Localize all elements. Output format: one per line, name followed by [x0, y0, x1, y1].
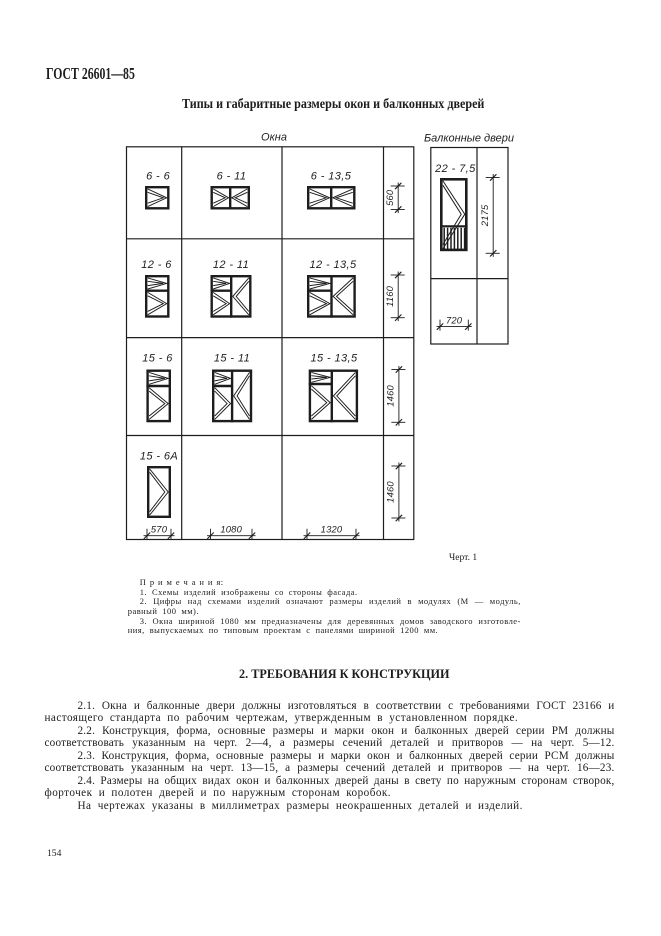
svg-text:12 - 6: 12 - 6 — [141, 259, 172, 271]
svg-text:Балконные двери: Балконные двери — [424, 133, 514, 145]
svg-text:1080: 1080 — [220, 524, 242, 535]
svg-text:12 - 11: 12 - 11 — [213, 259, 249, 271]
svg-text:2175: 2175 — [479, 204, 490, 227]
svg-text:560: 560 — [384, 189, 395, 206]
svg-text:Окна: Окна — [261, 132, 287, 144]
svg-text:570: 570 — [151, 524, 168, 535]
svg-text:15 - 6А: 15 - 6А — [140, 451, 178, 463]
svg-text:6 - 6: 6 - 6 — [146, 171, 170, 183]
svg-text:1460: 1460 — [385, 481, 396, 503]
svg-text:6 - 11: 6 - 11 — [217, 171, 247, 183]
svg-text:1320: 1320 — [321, 524, 343, 535]
svg-text:6 - 13,5: 6 - 13,5 — [311, 171, 352, 183]
svg-text:15 - 11: 15 - 11 — [214, 353, 250, 365]
svg-text:15 - 13,5: 15 - 13,5 — [310, 353, 358, 365]
svg-text:15 - 6: 15 - 6 — [142, 353, 173, 365]
svg-text:1160: 1160 — [384, 285, 395, 307]
svg-text:12 - 13,5: 12 - 13,5 — [309, 259, 357, 271]
svg-text:22 - 7,5: 22 - 7,5 — [434, 163, 476, 175]
svg-text:1460: 1460 — [385, 384, 396, 406]
svg-text:720: 720 — [446, 314, 463, 325]
